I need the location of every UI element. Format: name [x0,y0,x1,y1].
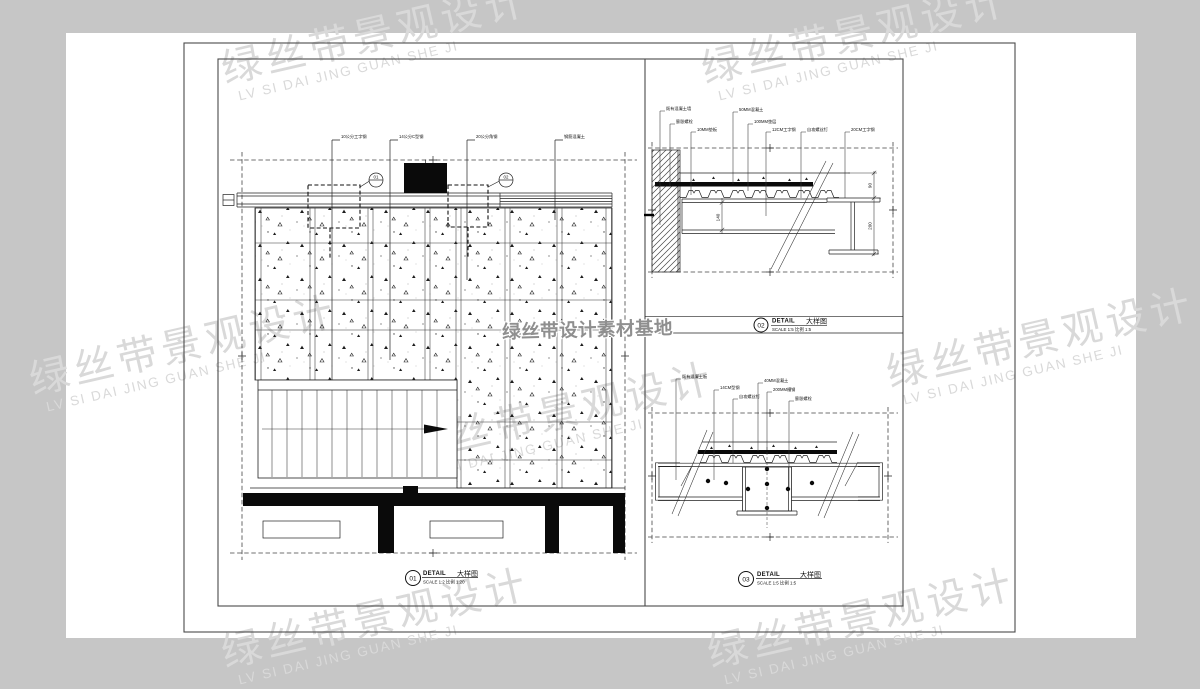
detail-word-cn: 大样图 [457,569,478,578]
detail-02-title: 02 DETAIL 大样图 SCALE 1:5 比例 1:5 [754,317,827,334]
detail-number: 01 [409,576,417,583]
annotation-labels: 既有混凝土墙 膨胀螺栓 10MM垫板 50MM混凝土 100MM垫层 12CM工… [660,105,875,225]
annotation-label: 10MM垫板 [697,126,718,133]
annotation-label: 钢筋混凝土 [564,133,585,140]
corrugated-deck [700,456,837,463]
dim-text: 140 [716,213,721,221]
dim-text: 200 [868,222,873,230]
detail-scale-cn: 比例 1:20 [446,579,465,586]
detail-scale-cn: 比例 1:5 [780,580,797,587]
annotation-label: 自攻螺丝钉 [739,393,761,400]
detail-word: DETAIL [757,572,780,578]
existing-wall [644,150,680,272]
pier [613,506,625,553]
steel-plate [698,450,837,454]
annotation-label: 膨胀螺栓 [676,118,694,125]
annotation-label: 100MM垫层 [754,118,776,125]
annotation-label: 10公分工字钢 [341,133,367,140]
base-structure [243,486,625,553]
floor-assembly [655,173,850,234]
detail-number: 03 [742,577,750,584]
annotation-label: 14CM型钢 [720,384,740,391]
pier [545,506,559,553]
detail-01-title: 01 DETAIL 大样图 SCALE 1:2 比例 1:20 [406,569,479,586]
boundary-dashed [648,142,898,278]
detail-01-drawing: 01 02 10公分工字钢 14公分C型钢 20公分角钢 钢筋混凝土 [223,133,637,560]
callout-bubble-number: 01 [374,175,379,180]
detail-03-title: 03 DETAIL 大样图 SCALE 1:5 比例 1:5 [739,570,823,587]
annotation-label: 膨胀螺栓 [795,395,813,402]
annotation-label: 20公分角钢 [476,133,497,140]
annotation-label: 14公分C型钢 [399,133,423,140]
annotation-label: 50MM混凝土 [739,106,763,113]
callout-bubble-number: 02 [504,175,509,180]
annotation-label: 200MM槽钢 [773,386,795,393]
plank-panel [258,380,457,478]
detail-number: 02 [757,322,765,329]
annotation-label: 40MM混凝土 [764,377,788,384]
dim-text: 90 [868,183,873,189]
opening [263,521,340,538]
detail-scale: SCALE 1:2 [423,580,445,585]
detail-scale: SCALE 1:5 [772,327,794,332]
annotation-label: 12CM工字钢 [772,126,796,133]
detail-scale: SCALE 1:5 [757,581,779,586]
pier [378,506,394,553]
annotation-label: 20CM工字钢 [851,126,875,133]
cad-linework: 01 02 10公分工字钢 14公分C型钢 20公分角钢 钢筋混凝土 [0,0,1200,689]
detail-word-cn: 大样图 [806,317,827,326]
annotation-label: 自攻螺丝钉 [807,126,829,133]
opening [430,521,503,538]
corrugated-deck [680,191,839,198]
watermark-center: 绿丝带设计素材基地 [502,314,674,344]
detail-word-cn: 大样图 [800,570,821,579]
detail-02-drawing: 140 90 200 既有混凝土墙 膨胀螺栓 10MM垫板 50MM混凝土 10… [644,105,898,278]
detail-scale-cn: 比例 1:5 [795,326,812,333]
detail-03-drawing: 既有混凝土板 14CM型钢 自攻螺丝钉 40MM混凝土 200MM槽钢 膨胀螺栓 [648,373,898,543]
column-block [404,160,447,194]
detail-word: DETAIL [423,571,446,577]
ground-beam [243,493,625,506]
band-tab [403,486,418,493]
annotation-label: 既有混凝土板 [682,373,708,380]
annotation-label: 既有混凝土墙 [666,105,691,112]
top-beam [223,193,612,207]
detail-word: DETAIL [772,319,795,325]
steel-plate [655,182,813,187]
page-background: 绿丝带景观设计 LV SI DAI JING GUAN SHE JI 绿丝带景观… [0,0,1200,689]
break-lines [771,161,833,271]
